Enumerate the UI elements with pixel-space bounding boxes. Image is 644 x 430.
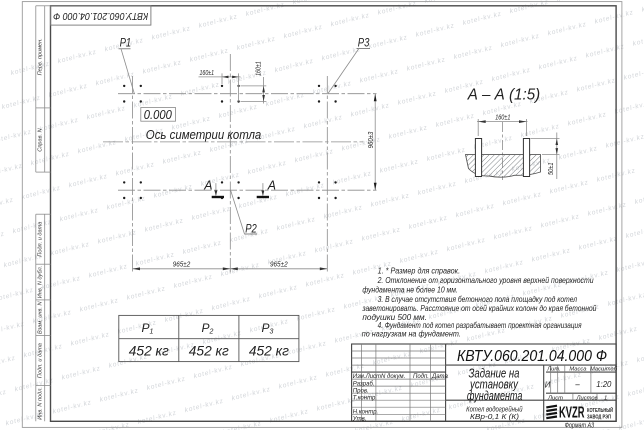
svg-text:Инв. N дубл.: Инв. N дубл. [38, 266, 44, 298]
svg-text:kotel-kv.kz: kotel-kv.kz [14, 377, 55, 393]
svg-text:kotel-kv.kz: kotel-kv.kz [368, 34, 409, 50]
svg-text:kotel-kv.kz: kotel-kv.kz [426, 146, 467, 162]
svg-text:452 кг: 452 кг [249, 342, 289, 358]
svg-text:0.000: 0.000 [144, 108, 172, 122]
svg-text:kotel-kv.kz: kotel-kv.kz [605, 133, 644, 149]
svg-text:kotel-kv.kz: kotel-kv.kz [509, 0, 550, 15]
svg-text:kotel-kv.kz: kotel-kv.kz [144, 217, 185, 233]
svg-text:kotel-kv.kz: kotel-kv.kz [370, 192, 411, 208]
svg-text:kotel-kv.kz: kotel-kv.kz [305, 272, 346, 288]
svg-text:kotel-kv.kz: kotel-kv.kz [256, 126, 297, 142]
svg-text:452 кг: 452 кг [129, 342, 169, 358]
svg-text:965±2: 965±2 [270, 261, 288, 268]
svg-text:kotel-kv.kz: kotel-kv.kz [417, 180, 458, 196]
svg-text:kotel-kv.kz: kotel-kv.kz [61, 365, 102, 381]
svg-text:kotel-kv.kz: kotel-kv.kz [408, 214, 449, 230]
svg-text:kotel-kv.kz: kotel-kv.kz [99, 387, 140, 403]
svg-text:КВТУ.060.201.04.000 Ф: КВТУ.060.201.04.000 Ф [53, 10, 148, 21]
svg-text:kotel-kv.kz: kotel-kv.kz [265, 92, 306, 108]
svg-text:kotel-kv.kz: kotel-kv.kz [0, 196, 15, 212]
svg-text:А – А (1:5): А – А (1:5) [467, 87, 540, 104]
svg-text:kotel-kv.kz: kotel-kv.kz [198, 13, 239, 29]
svg-text:Подп.: Подп. [413, 374, 429, 380]
svg-text:kotel-kv.kz: kotel-kv.kz [538, 55, 579, 71]
svg-text:Взам. инв. N: Взам. инв. N [38, 300, 44, 334]
svg-text:kotel-kv.kz: kotel-kv.kz [415, 22, 456, 38]
svg-text:Ось симетрии котла: Ось симетрии котла [146, 127, 261, 142]
svg-text:Справ. N: Справ. N [38, 127, 44, 151]
svg-text:kotel-kv.kz: kotel-kv.kz [614, 99, 644, 115]
svg-text:kotel-kv.kz: kotel-kv.kz [115, 161, 156, 177]
svg-text:КОТЕЛЬНЫЙ: КОТЕЛЬНЫЙ [587, 406, 613, 414]
svg-text:kotel-kv.kz: kotel-kv.kz [379, 158, 420, 174]
svg-text:kotel-kv.kz: kotel-kv.kz [330, 12, 371, 28]
svg-text:kotel-kv.kz: kotel-kv.kz [502, 191, 543, 207]
svg-text:Лит.: Лит. [546, 366, 561, 372]
svg-text:kotel-kv.kz: kotel-kv.kz [462, 10, 503, 26]
svg-text:kotel-kv.kz: kotel-kv.kz [95, 71, 136, 87]
svg-text:kotel-kv.kz: kotel-kv.kz [377, 0, 418, 16]
svg-text:kotel-kv.kz: kotel-kv.kz [191, 205, 232, 221]
svg-text:kotel-kv.kz: kotel-kv.kz [79, 297, 120, 313]
svg-text:kotel-kv.kz: kotel-kv.kz [258, 284, 299, 300]
svg-text:kotel-kv.kz: kotel-kv.kz [372, 350, 413, 366]
svg-text:Т.контр.: Т.контр. [353, 395, 377, 401]
svg-text:kotel-kv.kz: kotel-kv.kz [142, 59, 183, 75]
svg-text:ЗАВОД РЭП: ЗАВОД РЭП [587, 414, 611, 420]
svg-text:kotel-kv.kz: kotel-kv.kz [276, 216, 317, 232]
svg-text:kotel-kv.kz: kotel-kv.kz [598, 325, 639, 341]
svg-text:kotel-kv.kz: kotel-kv.kz [146, 375, 187, 391]
svg-text:kotel-kv.kz: kotel-kv.kz [52, 399, 93, 415]
svg-text:kotel-kv.kz: kotel-kv.kz [41, 275, 82, 291]
svg-text:kotel-kv.kz: kotel-kv.kz [135, 251, 176, 267]
svg-text:kotel-kv.kz: kotel-kv.kz [137, 409, 178, 425]
svg-text:kotel-kv.kz: kotel-kv.kz [625, 223, 644, 239]
svg-text:Подп. и дата: Подп. и дата [38, 343, 44, 378]
svg-text:Инв. N подл.: Инв. N подл. [38, 387, 44, 420]
svg-text:kotel-kv.kz: kotel-kv.kz [627, 382, 644, 398]
svg-text:kotel-kv.kz: kotel-kv.kz [359, 68, 400, 84]
svg-text:kotel-kv.kz: kotel-kv.kz [50, 241, 91, 257]
svg-text:kotel-kv.kz: kotel-kv.kz [578, 235, 619, 251]
svg-text:kotel-kv.kz: kotel-kv.kz [269, 408, 310, 424]
svg-text:160±1: 160±1 [200, 70, 215, 77]
svg-text:kotel-kv.kz: kotel-kv.kz [68, 173, 109, 189]
svg-text:kotel-kv.kz: kotel-kv.kz [446, 237, 487, 253]
svg-text:KVZR: KVZR [559, 405, 585, 422]
svg-text:Пров.: Пров. [353, 388, 369, 394]
svg-text:kotel-kv.kz: kotel-kv.kz [406, 56, 447, 72]
svg-text:kotel-kv.kz: kotel-kv.kz [623, 65, 644, 81]
svg-text:kotel-kv.kz: kotel-kv.kz [12, 219, 53, 235]
svg-text:Листов: Листов [576, 395, 598, 401]
svg-text:kotel-kv.kz: kotel-kv.kz [151, 25, 192, 41]
svg-text:kotel-kv.kz: kotel-kv.kz [274, 58, 315, 74]
svg-text:kotel-kv.kz: kotel-kv.kz [0, 128, 33, 144]
svg-text:kotel-kv.kz: kotel-kv.kz [587, 201, 628, 217]
svg-text:kotel-kv.kz: kotel-kv.kz [540, 213, 581, 229]
svg-text:160±1: 160±1 [255, 61, 262, 76]
svg-text:kotel-kv.kz: kotel-kv.kz [126, 285, 167, 301]
svg-text:kotel-kv.kz: kotel-kv.kz [48, 83, 89, 99]
svg-text:kotel-kv.kz: kotel-kv.kz [189, 47, 230, 63]
svg-text:452 кг: 452 кг [189, 342, 229, 358]
svg-text:kotel-kv.kz: kotel-kv.kz [547, 21, 588, 37]
svg-text:kotel-kv.kz: kotel-kv.kz [86, 105, 127, 121]
svg-text:kotel-kv.kz: kotel-kv.kz [231, 386, 272, 402]
svg-text:kotel-kv.kz: kotel-kv.kz [296, 306, 337, 322]
svg-text:kotel-kv.kz: kotel-kv.kz [193, 364, 234, 380]
svg-text:kotel-kv.kz: kotel-kv.kz [531, 247, 572, 263]
svg-text:kotel-kv.kz: kotel-kv.kz [388, 124, 429, 140]
svg-text:kotel-kv.kz: kotel-kv.kz [0, 321, 26, 337]
svg-text:kotel-kv.kz: kotel-kv.kz [323, 204, 364, 220]
svg-text:kotel-kv.kz: kotel-kv.kz [435, 112, 476, 128]
svg-text:kotel-kv.kz: kotel-kv.kz [211, 296, 252, 312]
svg-text:kotel-kv.kz: kotel-kv.kz [634, 189, 644, 205]
svg-text:kotel-kv.kz: kotel-kv.kz [182, 239, 223, 255]
svg-text:N докум.: N докум. [381, 374, 405, 380]
svg-text:kotel-kv.kz: kotel-kv.kz [294, 148, 335, 164]
svg-text:kotel-kv.kz: kotel-kv.kz [424, 0, 465, 5]
svg-text:kotel-kv.kz: kotel-kv.kz [97, 229, 138, 245]
svg-text:kotel-kv.kz: kotel-kv.kz [88, 263, 129, 279]
svg-text:kotel-kv.kz: kotel-kv.kz [0, 162, 24, 178]
svg-text:kotel-kv.kz: kotel-kv.kz [636, 348, 644, 364]
svg-text:kotel-kv.kz: kotel-kv.kz [0, 389, 8, 405]
svg-text:kotel-kv.kz: kotel-kv.kz [162, 149, 203, 165]
svg-text:kotel-kv.kz: kotel-kv.kz [455, 203, 496, 219]
svg-text:kotel-kv.kz: kotel-kv.kz [303, 114, 344, 130]
svg-text:960±3: 960±3 [368, 132, 375, 149]
svg-text:kotel-kv.kz: kotel-kv.kz [153, 183, 194, 199]
svg-text:И: И [545, 380, 551, 389]
svg-text:kotel-kv.kz: kotel-kv.kz [632, 31, 644, 47]
svg-text:kotel-kv.kz: kotel-kv.kz [558, 145, 599, 161]
svg-text:1:20: 1:20 [596, 380, 612, 389]
svg-text:kotel-kv.kz: kotel-kv.kz [218, 103, 259, 119]
svg-text:160±1: 160±1 [495, 115, 510, 122]
svg-text:kotel-kv.kz: kotel-kv.kz [278, 374, 319, 390]
svg-text:Дата: Дата [431, 374, 448, 380]
svg-text:kotel-kv.kz: kotel-kv.kz [90, 421, 131, 430]
svg-text:kotel-kv.kz: kotel-kv.kz [283, 24, 324, 40]
svg-text:kotel-kv.kz: kotel-kv.kz [567, 111, 608, 127]
svg-text:kotel-kv.kz: kotel-kv.kz [500, 33, 541, 49]
svg-text:kotel-kv.kz: kotel-kv.kz [316, 396, 357, 412]
svg-text:kotel-kv.kz: kotel-kv.kz [77, 139, 118, 155]
svg-text:Подп. и дата: Подп. и дата [38, 222, 44, 257]
svg-text:kotel-kv.kz: kotel-kv.kz [184, 398, 225, 414]
svg-text:kotel-kv.kz: kotel-kv.kz [361, 226, 402, 242]
svg-text:Разраб.: Разраб. [353, 381, 375, 387]
svg-text:КВр-0,1 К (К): КВр-0,1 К (К) [470, 412, 520, 421]
svg-text:kotel-kv.kz: kotel-kv.kz [453, 44, 494, 60]
svg-text:kotel-kv.kz: kotel-kv.kz [585, 43, 626, 59]
svg-text:kotel-kv.kz: kotel-kv.kz [70, 331, 111, 347]
svg-text:kotel-kv.kz: kotel-kv.kz [0, 230, 6, 246]
svg-text:Масштаб: Масштаб [590, 366, 618, 372]
svg-text:P1: P1 [120, 38, 132, 50]
svg-text:kotel-kv.kz: kotel-kv.kz [399, 248, 440, 264]
svg-text:P3: P3 [358, 38, 370, 50]
svg-text:kotel-kv.kz: kotel-kv.kz [0, 355, 17, 371]
svg-text:kotel-kv.kz: kotel-kv.kz [180, 81, 221, 97]
svg-text:kotel-kv.kz: kotel-kv.kz [607, 291, 644, 307]
svg-text:Перв. примен.: Перв. примен. [38, 38, 44, 75]
svg-text:фундамента: фундамента [467, 389, 523, 403]
svg-text:kotel-kv.kz: kotel-kv.kz [314, 238, 355, 254]
svg-text:kotel-kv.kz: kotel-kv.kz [59, 207, 100, 223]
svg-text:P2: P2 [202, 321, 214, 336]
svg-text:A: A [203, 179, 212, 193]
svg-text:kotel-kv.kz: kotel-kv.kz [332, 170, 373, 186]
svg-text:kotel-kv.kz: kotel-kv.kz [220, 262, 261, 278]
svg-text:kotel-kv.kz: kotel-kv.kz [616, 257, 644, 273]
svg-text:kotel-kv.kz: kotel-kv.kz [236, 35, 277, 51]
svg-text:kotel-kv.kz: kotel-kv.kz [287, 340, 328, 356]
svg-text:kotel-kv.kz: kotel-kv.kz [57, 49, 98, 65]
svg-text:kotel-kv.kz: kotel-kv.kz [549, 179, 590, 195]
svg-text:kotel-kv.kz: kotel-kv.kz [594, 9, 635, 25]
svg-text:Утв.: Утв. [352, 417, 367, 423]
svg-text:A: A [267, 179, 276, 193]
svg-text:Лист: Лист [547, 395, 563, 401]
svg-text:kotel-kv.kz: kotel-kv.kz [350, 102, 391, 118]
svg-text:kotel-kv.kz: kotel-kv.kz [245, 1, 286, 17]
svg-text:Формат А3: Формат А3 [565, 422, 595, 429]
svg-text:kotel-kv.kz: kotel-kv.kz [493, 225, 534, 241]
svg-text:1. * Размер для справок.: 1. * Размер для справок. [378, 265, 461, 275]
svg-text:965±2: 965±2 [173, 261, 191, 268]
svg-text:Масса: Масса [569, 366, 587, 372]
svg-text:1: 1 [604, 395, 607, 401]
svg-text:Изм.Лист: Изм.Лист [353, 374, 381, 380]
svg-text:kotel-kv.kz: kotel-kv.kz [576, 77, 617, 93]
svg-text:kotel-kv.kz: kotel-kv.kz [491, 67, 532, 83]
svg-text:kotel-kv.kz: kotel-kv.kz [0, 287, 35, 303]
svg-text:50±1: 50±1 [548, 162, 555, 175]
svg-text:kotel-kv.kz: kotel-kv.kz [419, 339, 460, 355]
svg-text:kotel-kv.kz: kotel-kv.kz [21, 185, 62, 201]
svg-text:kotel-kv.kz: kotel-kv.kz [484, 259, 525, 275]
svg-text:kotel-kv.kz: kotel-kv.kz [397, 90, 438, 106]
svg-text:kotel-kv.kz: kotel-kv.kz [247, 160, 288, 176]
svg-text:kotel-kv.kz: kotel-kv.kz [520, 123, 561, 139]
svg-text:–: – [574, 380, 580, 389]
svg-text:kotel-kv.kz: kotel-kv.kz [173, 273, 214, 289]
svg-text:Н.контр.: Н.контр. [353, 410, 378, 416]
svg-text:по нагрузкам на фундамент.: по нагрузкам на фундамент. [362, 329, 461, 339]
svg-text:КВТУ.060.201.04.000 Ф: КВТУ.060.201.04.000 Ф [457, 348, 607, 365]
